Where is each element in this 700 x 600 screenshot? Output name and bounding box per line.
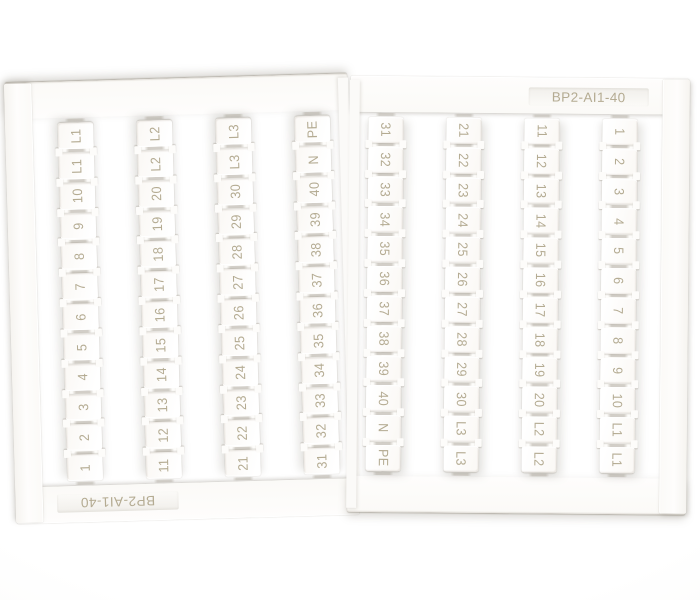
marker-tag: L3: [215, 118, 251, 145]
marker-text: 11: [535, 124, 549, 138]
marker-tag: 28: [444, 326, 479, 352]
marker-tag: 14: [143, 361, 179, 388]
marker-card-photo: BP2-AI1-40 31323334353637383940NPE212223…: [0, 0, 700, 600]
marker-text: 18: [533, 333, 547, 348]
marker-text: 1: [78, 464, 92, 472]
marker-text: 33: [313, 393, 327, 408]
marker-text: 2: [77, 434, 91, 442]
marker-tag: N: [295, 146, 331, 173]
marker-text: 32: [314, 423, 328, 438]
marker-text: 37: [378, 302, 392, 317]
marker-tag: 6: [601, 268, 636, 294]
marker-tag: 29: [218, 208, 254, 235]
marker-text: 23: [457, 183, 471, 198]
marker-tag: 27: [445, 297, 480, 323]
marker-tag: 24: [222, 359, 258, 386]
marker-text: 33: [379, 182, 393, 197]
marker-text: 26: [232, 305, 246, 320]
marker-tag: L2: [137, 120, 173, 147]
marker-text: 14: [154, 367, 168, 382]
marker-tag: 10: [59, 182, 95, 209]
marker-text: 31: [315, 453, 329, 468]
marker-text: L1: [611, 423, 625, 438]
marker-text: 10: [70, 188, 84, 203]
marker-tag: 22: [446, 147, 481, 173]
marker-tag: 32: [303, 417, 339, 444]
marker-text: 23: [234, 395, 248, 410]
side-rail: [659, 80, 690, 514]
top-rail: BP2-AI1-40: [351, 76, 689, 115]
marker-text: 7: [73, 283, 87, 291]
marker-text: L2: [148, 156, 162, 171]
marker-tag: 26: [221, 299, 257, 326]
marker-text: L2: [532, 452, 546, 467]
marker-tag: 13: [524, 178, 559, 204]
marker-tag: L3: [216, 148, 252, 175]
marker-text: 30: [455, 392, 469, 407]
marker-text: 22: [235, 425, 249, 440]
marker-tag: PE: [365, 445, 400, 471]
marker-strip: 11121314151617181920L2L2: [137, 120, 182, 479]
marker-tag: 33: [368, 177, 403, 203]
marker-tag: 34: [368, 206, 403, 232]
marker-tag: 14: [524, 208, 559, 234]
marker-text: 29: [229, 214, 243, 229]
marker-tag: 15: [142, 331, 178, 358]
marker-tag: L2: [521, 446, 556, 472]
marker-tag: 12: [145, 422, 181, 449]
marker-text: 4: [76, 373, 90, 381]
marker-strip: 12345678910L1L1: [58, 122, 103, 481]
marker-tag: 37: [299, 266, 335, 293]
marker-tag: 3: [65, 394, 101, 421]
marker-tag: 32: [368, 147, 403, 173]
marker-text: L1: [70, 158, 84, 173]
marker-text: 40: [377, 391, 391, 406]
marker-text: 3: [613, 188, 627, 195]
marker-text: 12: [535, 154, 549, 169]
marker-tag: 36: [367, 266, 402, 292]
marker-tag: 18: [522, 327, 557, 353]
marker-text: 6: [612, 277, 626, 284]
marker-strip: 31323334353637383940NPE: [365, 117, 403, 471]
marker-text: 15: [534, 243, 548, 258]
marker-text: L3: [455, 422, 469, 437]
marker-tag: 1: [67, 454, 103, 481]
marker-text: 18: [151, 247, 165, 262]
marker-tag: 11: [524, 118, 559, 144]
marker-tag: 39: [297, 206, 333, 233]
marker-tag: 2: [602, 149, 637, 175]
marker-strip: 21222324252627282930L3L3: [215, 118, 260, 477]
marker-text: 3: [76, 403, 90, 411]
marker-text: 25: [456, 243, 470, 258]
marker-text: 8: [72, 252, 86, 260]
marker-tag: 30: [444, 386, 479, 412]
marker-tag: L1: [599, 447, 634, 473]
marker-text: 34: [312, 363, 326, 378]
marker-text: L2: [148, 126, 162, 141]
marker-tag: 27: [220, 269, 256, 296]
marker-text: L1: [610, 453, 624, 468]
marker-text: 12: [156, 428, 170, 443]
marker-text: 31: [379, 123, 393, 138]
marker-strip: 31323334353637383940NPE: [294, 115, 339, 474]
marker-text: 16: [534, 273, 548, 288]
marker-text: 11: [157, 458, 171, 472]
marker-text: 25: [232, 335, 246, 350]
marker-tag: 5: [601, 238, 636, 264]
marker-tag: 35: [300, 327, 336, 354]
marker-tag: 20: [522, 387, 557, 413]
card-half-left: BP2-AI1-40 31323334353637383940NPE212223…: [5, 73, 359, 524]
marker-text: 38: [309, 242, 323, 257]
marker-tag: 23: [446, 177, 481, 203]
marker-tag: 39: [366, 356, 401, 382]
marker-text: 19: [533, 363, 547, 378]
strips-area: 31323334353637383940NPE21222324252627282…: [347, 112, 661, 479]
marker-text: 13: [535, 184, 549, 199]
marker-tag: 40: [366, 385, 401, 411]
marker-text: 24: [233, 365, 247, 380]
marker-text: 20: [149, 186, 163, 201]
marker-text: 9: [611, 367, 625, 374]
marker-tag: L3: [444, 416, 479, 442]
marker-text: PE: [305, 120, 319, 138]
marker-tag: 5: [64, 333, 100, 360]
marker-text: 17: [534, 303, 548, 318]
marker-text: 10: [611, 393, 625, 408]
marker-text: 24: [456, 213, 470, 228]
marker-tag: 22: [224, 419, 260, 446]
marker-text: 1: [613, 128, 627, 135]
marker-tag: 33: [302, 387, 338, 414]
marker-tag: 20: [138, 180, 174, 207]
marker-text: 2: [613, 158, 627, 165]
card-half-right: BP2-AI1-40 31323334353637383940NPE212223…: [347, 76, 689, 515]
marker-tag: 6: [63, 303, 99, 330]
marker-text: 35: [311, 333, 325, 348]
marker-text: L3: [454, 451, 468, 466]
marker-tag: 40: [296, 176, 332, 203]
marker-tag: 11: [146, 452, 182, 479]
marker-tag: 1: [602, 119, 637, 145]
marker-text: 32: [379, 152, 393, 167]
marker-tag: 38: [298, 236, 334, 263]
bottom-rail: [347, 476, 685, 515]
marker-tag: 36: [299, 297, 335, 324]
marker-tag: 17: [523, 297, 558, 323]
marker-tag: L3: [443, 446, 478, 472]
marker-tag: 24: [446, 207, 481, 233]
marker-text: 27: [231, 275, 245, 290]
marker-text: 39: [377, 361, 391, 376]
marker-text: 39: [308, 212, 322, 227]
marker-text: 28: [455, 332, 469, 347]
marker-tag: 4: [64, 364, 100, 391]
marker-text: 26: [456, 272, 470, 287]
marker-tag: 25: [221, 329, 257, 356]
marker-tag: 15: [523, 238, 558, 264]
marker-text: 27: [456, 302, 470, 317]
marker-text: 36: [310, 302, 324, 317]
marker-tag: 23: [223, 389, 259, 416]
marker-text: 6: [74, 313, 88, 321]
marker-text: 7: [612, 307, 626, 314]
marker-tag: 7: [601, 298, 636, 324]
marker-text: 13: [155, 397, 169, 412]
marker-strip: 21222324252627282930L3L3: [443, 118, 481, 472]
marker-text: 29: [455, 362, 469, 377]
marker-text: 40: [307, 182, 321, 197]
marker-text: 5: [75, 343, 89, 351]
marker-tag: L2: [137, 150, 173, 177]
marker-tag: 9: [600, 358, 635, 384]
marker-tag: N: [366, 415, 401, 441]
marker-text: 20: [533, 392, 547, 407]
marker-tag: 16: [142, 301, 178, 328]
marker-text: 38: [377, 331, 391, 346]
marker-text: 21: [236, 456, 250, 471]
marker-card: BP2-AI1-40 31323334353637383940NPE212223…: [11, 75, 692, 518]
marker-tag: 3: [602, 179, 637, 205]
marker-tag: 25: [445, 237, 480, 263]
marker-tag: 34: [301, 357, 337, 384]
marker-text: 5: [612, 248, 626, 255]
marker-text: PE: [376, 449, 390, 467]
marker-tag: L1: [58, 122, 94, 149]
marker-tag: 21: [446, 118, 481, 144]
marker-text: 21: [457, 123, 471, 138]
marker-tag: 38: [366, 326, 401, 352]
marker-tag: 37: [367, 296, 402, 322]
marker-tag: 26: [445, 267, 480, 293]
marker-tag: 4: [602, 208, 637, 234]
marker-text: L2: [533, 422, 547, 437]
marker-tag: 7: [62, 273, 98, 300]
marker-tag: 21: [225, 450, 261, 477]
marker-tag: 9: [60, 213, 96, 240]
marker-text: 17: [152, 277, 166, 292]
marker-tag: 17: [141, 271, 177, 298]
marker-tag: 35: [367, 236, 402, 262]
marker-strip: 12345678910L1L1: [599, 119, 637, 473]
product-label: BP2-AI1-40: [529, 87, 649, 106]
marker-tag: 31: [304, 447, 340, 474]
marker-tag: 16: [523, 267, 558, 293]
marker-tag: 10: [600, 387, 635, 413]
marker-text: 37: [310, 272, 324, 287]
marker-text: L3: [227, 154, 241, 169]
marker-tag: 19: [522, 357, 557, 383]
strips-area: 31323334353637383940NPE21222324252627282…: [33, 110, 358, 487]
marker-text: L1: [69, 128, 83, 143]
marker-text: 9: [71, 222, 85, 230]
marker-text: 16: [153, 307, 167, 322]
product-label: BP2-AI1-40: [57, 491, 179, 513]
marker-tag: PE: [294, 116, 330, 143]
marker-text: 19: [150, 216, 164, 231]
marker-text: 30: [228, 184, 242, 199]
marker-tag: 12: [524, 148, 559, 174]
marker-tag: L1: [600, 417, 635, 443]
marker-text: 15: [153, 337, 167, 352]
marker-tag: L1: [58, 152, 94, 179]
marker-tag: 19: [139, 210, 175, 237]
marker-tag: 13: [144, 391, 180, 418]
marker-tag: 28: [219, 238, 255, 265]
marker-tag: 29: [444, 356, 479, 382]
marker-tag: 31: [368, 117, 403, 143]
marker-tag: 2: [66, 424, 102, 451]
marker-strip: 11121314151617181920L2L2: [521, 118, 559, 472]
marker-text: 34: [378, 212, 392, 227]
marker-text: 35: [378, 242, 392, 257]
marker-text: 4: [612, 218, 626, 225]
marker-tag: 8: [61, 243, 97, 270]
marker-text: 22: [457, 153, 471, 168]
marker-tag: 18: [140, 241, 176, 268]
marker-tag: 8: [600, 328, 635, 354]
marker-text: N: [306, 154, 320, 164]
marker-tag: 30: [217, 178, 253, 205]
marker-text: 8: [611, 337, 625, 344]
marker-tag: L2: [522, 417, 557, 443]
marker-text: N: [377, 423, 391, 433]
marker-text: 28: [230, 244, 244, 259]
marker-text: L3: [226, 124, 240, 139]
marker-text: 14: [534, 213, 548, 228]
marker-text: 36: [378, 272, 392, 287]
